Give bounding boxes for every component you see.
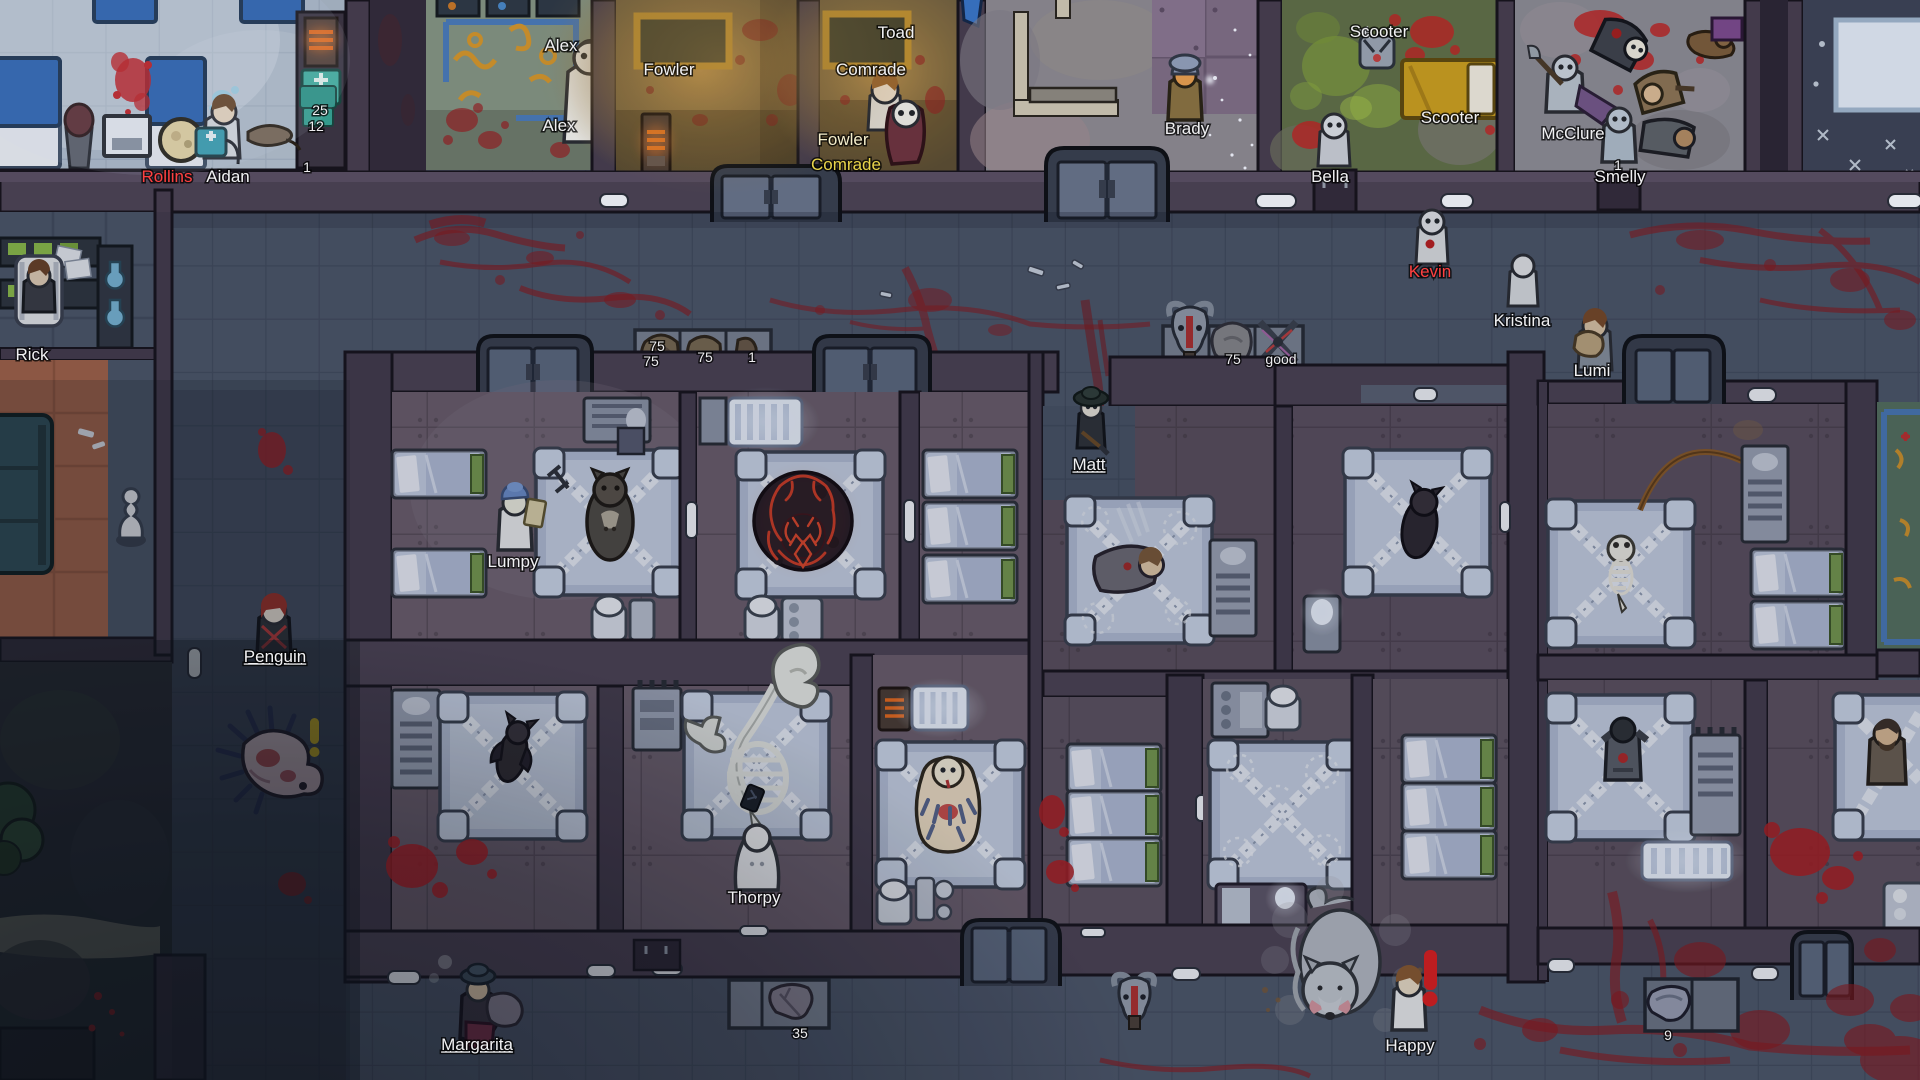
svg-text:Matt: Matt: [1072, 455, 1105, 474]
svg-text:Lumpy: Lumpy: [487, 552, 539, 571]
svg-text:25: 25: [312, 102, 328, 118]
svg-text:Fowler: Fowler: [817, 130, 868, 149]
svg-text:75: 75: [697, 349, 713, 365]
svg-text:Aidan: Aidan: [206, 167, 249, 186]
svg-text:Lumi: Lumi: [1574, 361, 1611, 380]
svg-text:75: 75: [1225, 351, 1241, 367]
svg-text:Happy: Happy: [1385, 1036, 1435, 1055]
svg-text:Kristina: Kristina: [1494, 311, 1551, 330]
svg-text:Toad: Toad: [878, 23, 915, 42]
svg-text:75: 75: [643, 353, 659, 369]
svg-text:Brady: Brady: [1165, 119, 1210, 138]
svg-text:1: 1: [748, 349, 756, 365]
svg-text:Smelly: Smelly: [1594, 167, 1646, 186]
svg-text:Rollins: Rollins: [141, 167, 192, 186]
svg-text:75: 75: [649, 338, 665, 354]
svg-text:12: 12: [308, 118, 324, 134]
svg-text:Alex: Alex: [544, 36, 578, 55]
svg-text:Bella: Bella: [1311, 167, 1349, 186]
svg-text:good: good: [1265, 351, 1296, 367]
svg-text:Comrade: Comrade: [811, 155, 881, 174]
svg-text:McClure: McClure: [1541, 124, 1604, 143]
svg-text:9: 9: [1664, 1027, 1672, 1043]
svg-text:Rick: Rick: [15, 345, 49, 364]
svg-text:Scooter: Scooter: [1421, 108, 1480, 127]
svg-text:Scooter: Scooter: [1350, 22, 1409, 41]
svg-text:Comrade: Comrade: [836, 60, 906, 79]
svg-text:35: 35: [792, 1025, 808, 1041]
svg-text:Margarita: Margarita: [441, 1035, 513, 1054]
svg-text:Thorpy: Thorpy: [728, 888, 781, 907]
svg-text:Alex: Alex: [542, 116, 576, 135]
svg-text:Kevin: Kevin: [1409, 262, 1452, 281]
svg-text:Penguin: Penguin: [244, 647, 306, 666]
svg-text:Fowler: Fowler: [643, 60, 694, 79]
svg-text:1: 1: [303, 159, 311, 175]
